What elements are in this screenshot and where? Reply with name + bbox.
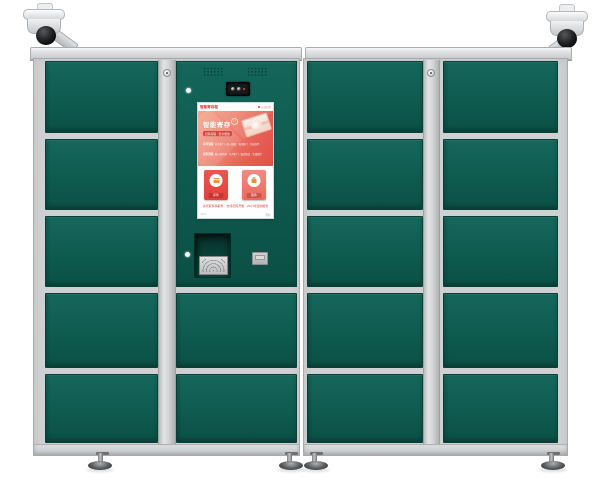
hatch-plate-texture bbox=[202, 259, 225, 272]
screen-footer: V2.0 帮助 bbox=[198, 212, 273, 218]
banner-row: 取件流程输入取件码 · 打开柜门 · 取出物品 · 完成取件 bbox=[203, 152, 269, 156]
banner-title: 智能寄存 bbox=[203, 119, 231, 129]
banner-row: 存件流程打开柜门 · 放入物品 · 关闭柜门 · 完成存件 bbox=[203, 142, 269, 146]
header-info: 欢迎使用 bbox=[258, 105, 271, 109]
screen-header: 智能寄存柜 欢迎使用 bbox=[198, 103, 273, 111]
door-lock bbox=[163, 69, 171, 77]
red-dot-icon bbox=[258, 106, 260, 108]
locker-door bbox=[443, 374, 558, 443]
locker-door bbox=[45, 293, 158, 368]
speaker-grille-left bbox=[203, 67, 224, 77]
locker-door bbox=[443, 216, 558, 287]
status-led bbox=[185, 252, 190, 257]
locker-door bbox=[45, 61, 158, 133]
camera-led bbox=[243, 88, 245, 90]
locker-door bbox=[307, 139, 423, 210]
deposit-button[interactable]: 存件 bbox=[204, 170, 228, 200]
card-icon-circle bbox=[210, 174, 223, 187]
locker-door bbox=[443, 139, 558, 210]
pickup-parcel-icon bbox=[252, 179, 257, 183]
banner-badge: 扫码存取 · 安全便捷 bbox=[203, 131, 232, 136]
locker-door bbox=[307, 61, 423, 133]
smart-locker-product-image: 智能寄存柜 欢迎使用 智能寄存 ↻ 扫码存取 · 安全便捷 存件流程打开柜门 ·… bbox=[0, 0, 613, 489]
card-icon-circle bbox=[248, 174, 261, 187]
column-divider-strip bbox=[423, 60, 440, 444]
locker-door bbox=[45, 374, 158, 443]
card-label: 存件 bbox=[209, 193, 224, 198]
speaker-grille-right bbox=[247, 67, 268, 77]
locker-door bbox=[443, 293, 558, 368]
locker-door bbox=[176, 374, 297, 443]
column-divider-strip bbox=[158, 60, 176, 444]
locker-door bbox=[45, 216, 158, 287]
face-camera-module bbox=[226, 82, 250, 96]
door-lock bbox=[427, 69, 435, 77]
status-led bbox=[186, 88, 191, 93]
camera-dome-lens bbox=[36, 26, 56, 45]
refresh-icon: ↻ bbox=[231, 118, 238, 125]
footer-help[interactable]: 帮助 bbox=[265, 213, 270, 217]
camera-dome-lens bbox=[557, 29, 577, 48]
hatch-plate bbox=[199, 256, 228, 275]
locker-door bbox=[443, 61, 558, 133]
locker-door bbox=[45, 139, 158, 210]
camera-lens bbox=[237, 87, 241, 91]
locker-door bbox=[307, 216, 423, 287]
locker-door bbox=[307, 374, 423, 443]
card-reader bbox=[252, 252, 268, 265]
screen-body: 存件 取件 请凭取件码取件 · 支持扫码开柜 · 24小时自助服务 V2.0 帮… bbox=[198, 166, 273, 218]
locker-door bbox=[307, 293, 423, 368]
pickup-button[interactable]: 取件 bbox=[242, 170, 266, 200]
screen-banner: 智能寄存 ↻ 扫码存取 · 安全便捷 存件流程打开柜门 · 放入物品 · 关闭柜… bbox=[198, 111, 273, 166]
base-rail-right bbox=[304, 444, 567, 456]
camera-lens bbox=[231, 87, 235, 91]
locker-door bbox=[176, 293, 297, 368]
deposit-parcel-icon bbox=[213, 178, 219, 183]
base-rail-left bbox=[34, 444, 299, 456]
kiosk-touchscreen[interactable]: 智能寄存柜 欢迎使用 智能寄存 ↻ 扫码存取 · 安全便捷 存件流程打开柜门 ·… bbox=[198, 103, 273, 218]
screen-notice: 请凭取件码取件 · 支持扫码开柜 · 24小时自助服务 bbox=[198, 204, 273, 208]
card-label: 取件 bbox=[247, 193, 262, 198]
brand-logo: 智能寄存柜 bbox=[200, 105, 218, 110]
footer-version: V2.0 bbox=[201, 213, 206, 216]
